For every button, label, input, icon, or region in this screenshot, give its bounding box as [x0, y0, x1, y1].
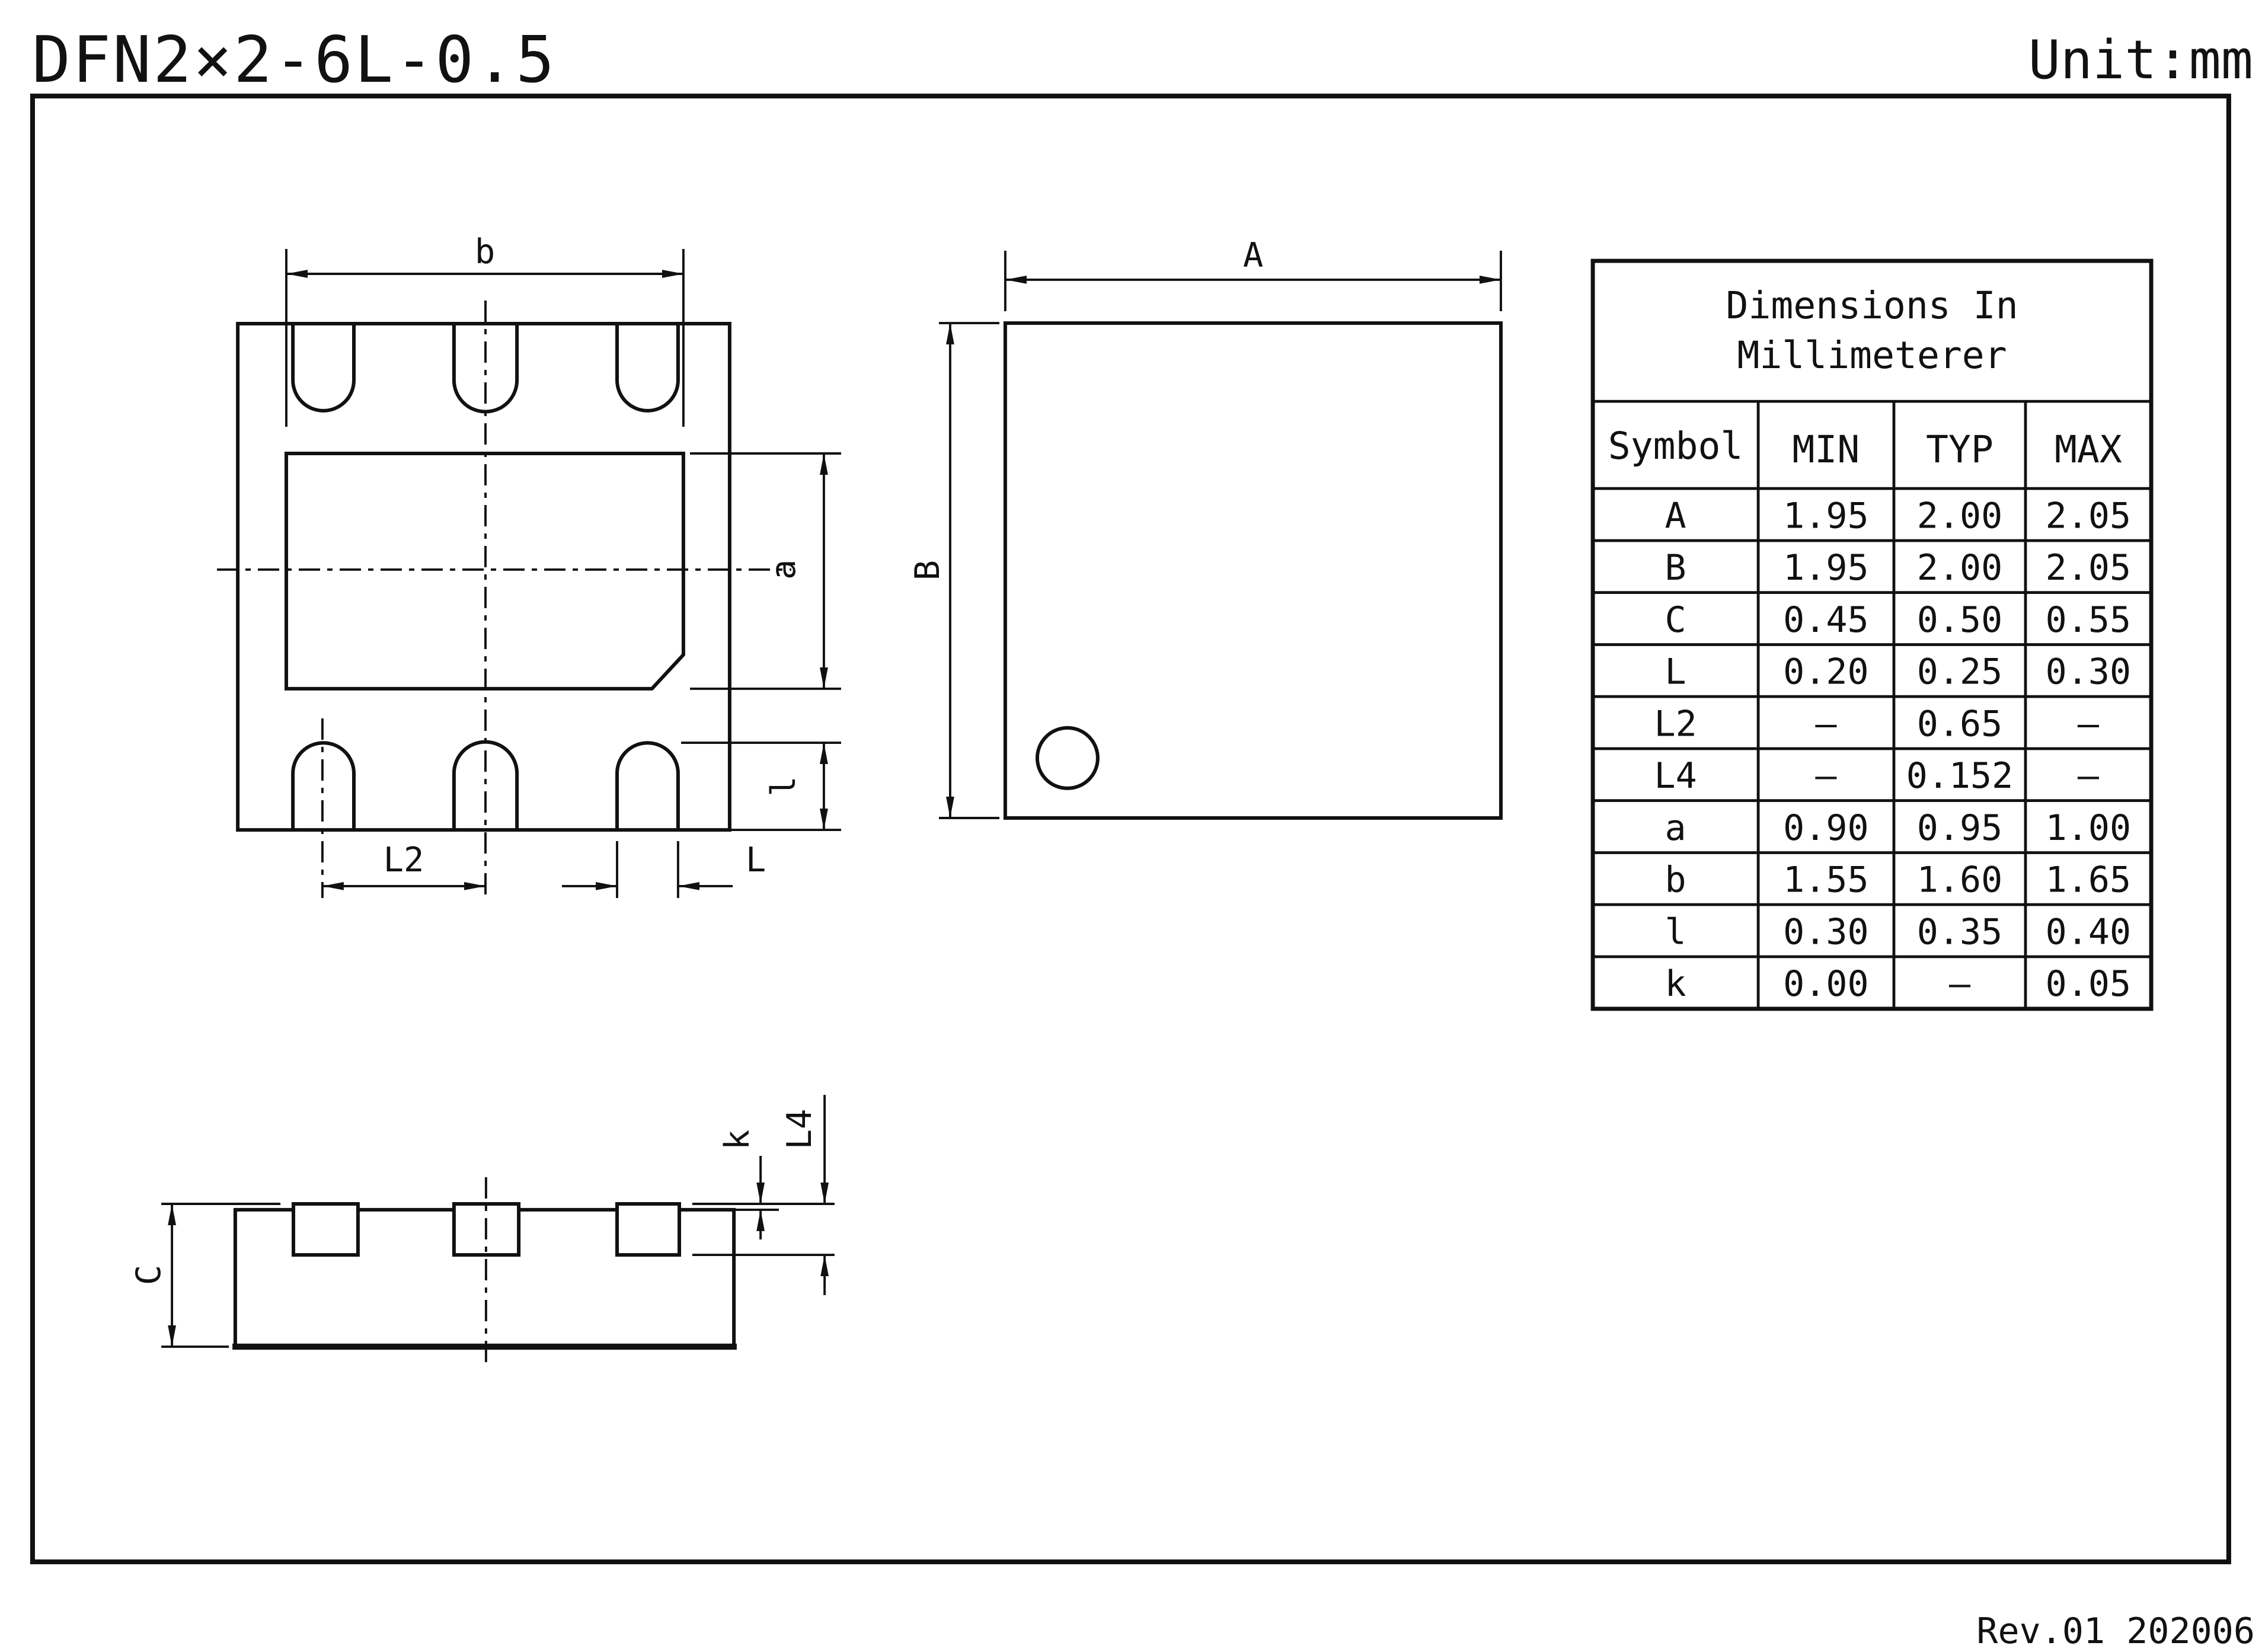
- side-view-drawing: C k L4: [129, 1095, 835, 1369]
- B-dim-label: B: [908, 560, 947, 580]
- svg-text:–: –: [1949, 963, 1971, 1005]
- table-title-line2: Millimeterer: [1737, 334, 2007, 377]
- svg-text:1.95: 1.95: [1783, 495, 1869, 536]
- svg-text:2.00: 2.00: [1917, 547, 2002, 589]
- b-dim-label: b: [475, 232, 495, 271]
- svg-text:1.95: 1.95: [1783, 547, 1869, 589]
- package-top-outline: [1005, 323, 1501, 818]
- L2-dim-label: L2: [384, 841, 424, 880]
- svg-text:B: B: [1665, 547, 1686, 589]
- svg-text:1.60: 1.60: [1917, 859, 2002, 901]
- pin1-marker-circle: [1037, 728, 1098, 788]
- svg-text:–: –: [1815, 703, 1837, 744]
- svg-text:2.00: 2.00: [1917, 495, 2002, 536]
- table-row: a 0.90 0.95 1.00: [1665, 807, 2132, 849]
- table-row: L2 – 0.65 –: [1654, 703, 2099, 744]
- pad-top-1: [293, 324, 354, 411]
- table-row: k 0.00 – 0.05: [1665, 963, 2132, 1005]
- side-pad-1: [293, 1204, 358, 1255]
- svg-text:A: A: [1665, 495, 1686, 536]
- svg-text:0.50: 0.50: [1917, 599, 2002, 641]
- svg-text:L2: L2: [1654, 703, 1696, 744]
- svg-text:0.95: 0.95: [1917, 807, 2002, 849]
- C-dim-label: C: [129, 1265, 168, 1285]
- svg-text:0.20: 0.20: [1783, 651, 1869, 693]
- L4-dim-label: L4: [780, 1109, 819, 1150]
- svg-text:a: a: [1665, 807, 1686, 849]
- datasheet-page: DFN2×2-6L-0.5 Unit:mm b a l: [0, 0, 2262, 1652]
- svg-text:L4: L4: [1654, 755, 1696, 797]
- bottom-view-drawing: b a l L2 L: [217, 232, 841, 898]
- col-header-max: MAX: [2055, 428, 2122, 471]
- svg-text:0.152: 0.152: [1906, 755, 2014, 797]
- svg-text:2.05: 2.05: [2046, 495, 2132, 536]
- k-dim-label: k: [718, 1130, 757, 1150]
- svg-text:1.55: 1.55: [1783, 859, 1869, 901]
- svg-text:0.65: 0.65: [1917, 703, 2002, 744]
- svg-text:0.30: 0.30: [1783, 911, 1869, 953]
- svg-text:–: –: [2078, 703, 2100, 744]
- revision-label: Rev.01 202006: [1976, 1611, 2255, 1652]
- svg-text:L: L: [1665, 651, 1686, 693]
- svg-text:l: l: [1665, 911, 1686, 953]
- table-row: A 1.95 2.00 2.05: [1665, 495, 2132, 536]
- svg-text:–: –: [2078, 755, 2100, 797]
- col-header-min: MIN: [1793, 428, 1860, 471]
- svg-text:0.45: 0.45: [1783, 599, 1869, 641]
- top-view-drawing: A B: [908, 236, 1501, 818]
- svg-text:1.00: 1.00: [2046, 807, 2132, 849]
- svg-text:1.65: 1.65: [2046, 859, 2132, 901]
- a-dim-label: a: [764, 560, 803, 580]
- table-row: l 0.30 0.35 0.40: [1665, 911, 2132, 953]
- dimensions-table: Dimensions In Millimeterer Symbol MIN TY…: [1593, 261, 2151, 1009]
- col-header-typ: TYP: [1926, 428, 1993, 471]
- package-drawing-sheet: DFN2×2-6L-0.5 Unit:mm b a l: [0, 0, 2262, 1652]
- svg-text:b: b: [1665, 859, 1686, 901]
- l-dim-label: l: [764, 776, 803, 796]
- svg-text:0.90: 0.90: [1783, 807, 1869, 849]
- svg-text:2.05: 2.05: [2046, 547, 2132, 589]
- svg-text:C: C: [1665, 599, 1686, 641]
- exposed-pad-outline: [286, 453, 683, 689]
- table-row: B 1.95 2.00 2.05: [1665, 547, 2132, 589]
- svg-text:k: k: [1665, 963, 1686, 1005]
- table-row: L 0.20 0.25 0.30: [1665, 651, 2132, 693]
- svg-text:0.35: 0.35: [1917, 911, 2002, 953]
- side-pad-3: [617, 1204, 679, 1255]
- A-dim-label: A: [1243, 236, 1263, 275]
- svg-text:–: –: [1815, 755, 1837, 797]
- svg-text:0.55: 0.55: [2046, 599, 2132, 641]
- L-dim-label: L: [746, 841, 766, 880]
- svg-text:0.00: 0.00: [1783, 963, 1869, 1005]
- svg-text:0.25: 0.25: [1917, 651, 2002, 693]
- package-body-outline: [238, 324, 730, 830]
- table-row: C 0.45 0.50 0.55: [1665, 599, 2132, 641]
- svg-text:0.30: 0.30: [2046, 651, 2132, 693]
- unit-label: Unit:mm: [2028, 29, 2253, 91]
- table-row: L4 – 0.152 –: [1654, 755, 2099, 797]
- svg-text:0.05: 0.05: [2046, 963, 2132, 1005]
- table-title-line1: Dimensions In: [1726, 284, 2018, 327]
- page-title: DFN2×2-6L-0.5: [32, 23, 556, 97]
- pad-bottom-3: [617, 743, 678, 830]
- svg-text:0.40: 0.40: [2046, 911, 2132, 953]
- col-header-symbol: Symbol: [1608, 424, 1743, 468]
- pad-top-3: [617, 324, 678, 411]
- table-row: b 1.55 1.60 1.65: [1665, 859, 2132, 901]
